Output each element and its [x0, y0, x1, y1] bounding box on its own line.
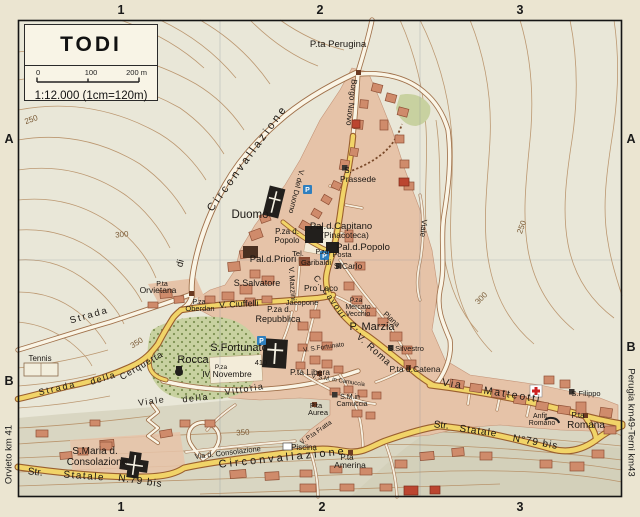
map-label: S.Fortunato [210, 342, 267, 354]
edge-label-orvieto: Orvieto km 41 [4, 395, 15, 515]
building-block [395, 460, 407, 468]
building-block [558, 405, 571, 415]
building-block [599, 407, 612, 418]
building-block [452, 447, 465, 456]
building-block [334, 366, 343, 373]
building-block [148, 302, 158, 308]
map-label: Str. [27, 466, 43, 479]
scale-bar: 0 100 200 m [25, 66, 157, 90]
scale-ratio-text: 1:12.000 (1cm=120m) [25, 90, 157, 102]
map-label: P.ta d.Catena [390, 364, 441, 374]
building-block [36, 430, 48, 437]
building-block [604, 426, 616, 434]
map-label: P.za d. [275, 227, 299, 236]
church-site-marker-icon [332, 392, 338, 398]
tennis-court-icon [24, 363, 58, 376]
grid-col-3-top: 3 [513, 3, 527, 17]
map-label: Camuccia [336, 401, 367, 408]
grid-row-b-left: B [2, 374, 16, 388]
grid-row-a-right: A [624, 132, 638, 146]
building-block [180, 420, 190, 427]
grid-row-a-left: A [2, 132, 16, 146]
building-block [560, 380, 570, 388]
map-label: P. Marzia [349, 321, 395, 333]
map-label: Romano [529, 420, 556, 427]
building-block [400, 160, 409, 168]
map-title: TODI [25, 25, 157, 66]
city-gate-icon [356, 70, 361, 75]
building-block [250, 270, 260, 278]
map-label: Popolo [275, 236, 300, 245]
building-block [228, 261, 241, 271]
building-block [230, 469, 247, 478]
building-block [360, 100, 369, 109]
map-label: P.ta Perugina [310, 39, 367, 50]
building-block [262, 296, 272, 303]
map-label: Anfit. [533, 413, 549, 420]
map-label: Viale [418, 219, 429, 238]
map-label: S.Filippo [571, 389, 600, 398]
map-label: P.za [315, 249, 328, 256]
map-label: Garibaldi [301, 258, 331, 267]
building-block [380, 484, 392, 491]
icon-glyph: P [305, 187, 310, 194]
map-label: S.Maria d. [72, 446, 118, 457]
building-block [380, 120, 388, 130]
map-label: P.za [350, 297, 363, 304]
city-gate-icon [189, 291, 194, 296]
building-block [390, 332, 402, 341]
building-block [366, 412, 375, 419]
building-block [470, 383, 483, 393]
map-label: Pal.d.Priori [250, 254, 296, 265]
grid-col-2-top: 2 [313, 3, 327, 17]
map-label: 300 [115, 229, 130, 239]
building-block [205, 420, 215, 427]
map-label: S.Carlo [334, 261, 363, 271]
map-label: 350 [236, 428, 250, 438]
map-label: IV Novembre [202, 369, 252, 379]
building-block [420, 451, 435, 460]
building-block [344, 282, 354, 290]
map-label: Prassede [340, 174, 376, 184]
rocca-tower-icon [175, 366, 183, 376]
building-block [310, 332, 322, 341]
map-label: Rocca [177, 354, 209, 366]
map-label: V. Ciuffelli [219, 298, 259, 310]
scale-ruler: 0 100 200 m [33, 68, 151, 85]
edge-label-perugia-terni: Perugia km49-Terni km43 [626, 345, 637, 501]
map-label: Mercato [345, 304, 370, 311]
todi-city-map-page: PPP P.ta PeruginaS.PrassedeDuomoPal.d.Ca… [0, 0, 640, 517]
building-block [372, 392, 381, 399]
building-block [344, 386, 353, 393]
grid-col-1-bottom: 1 [114, 500, 128, 514]
map-label: Romana [567, 420, 605, 431]
map-label: (Pinacoteca) [321, 230, 369, 240]
map-label: P.ta [571, 411, 585, 420]
map-label: Amerina [334, 460, 366, 470]
map-label: Str. [433, 419, 449, 432]
building-block [265, 472, 279, 481]
map-label: Orvietana [140, 285, 177, 295]
building-block [174, 296, 185, 304]
map-label: Posta [332, 250, 352, 259]
map-label: 410 [255, 358, 268, 367]
map-label: Duomo [231, 209, 268, 221]
map-label: S.Silvestro [388, 344, 424, 353]
map-label: S.Salvatore [234, 278, 281, 288]
building-block [544, 376, 554, 384]
building-block [310, 356, 320, 364]
grid-col-2-bottom: 2 [315, 500, 329, 514]
building-block [205, 296, 215, 303]
grid-col-1-top: 1 [114, 3, 128, 17]
building-block [570, 462, 584, 471]
building-block-red [404, 486, 418, 495]
map-label: P.za d. [267, 305, 291, 314]
grid-col-3-bottom: 3 [513, 500, 527, 514]
title-box: TODI 0 100 200 m 1:12.000 (1cm=120m) [24, 24, 158, 101]
building-block [480, 452, 492, 460]
map-label: Consolazione [67, 457, 128, 468]
map-label: Vecchio [346, 311, 371, 318]
building-block [300, 470, 312, 477]
building-block [540, 460, 552, 468]
map-label: Repubblica [255, 314, 300, 324]
building-block-red [399, 178, 409, 186]
building-block [90, 420, 100, 426]
building-block [300, 484, 316, 492]
scale-tick-200: 200 m [126, 68, 147, 77]
building-block [340, 484, 354, 491]
building-block [395, 135, 404, 143]
building-block [592, 450, 604, 458]
building-block [352, 410, 362, 417]
map-label: S.M.in [340, 394, 360, 401]
scale-tick-0: 0 [36, 68, 40, 77]
building-block [349, 147, 358, 156]
scale-tick-100: 100 [85, 68, 98, 77]
building-block [310, 310, 320, 318]
building-block-red [430, 486, 440, 494]
map-label: Aurea [308, 408, 329, 417]
map-label: Oberdan [185, 304, 214, 313]
map-label: Tennis [28, 354, 51, 363]
